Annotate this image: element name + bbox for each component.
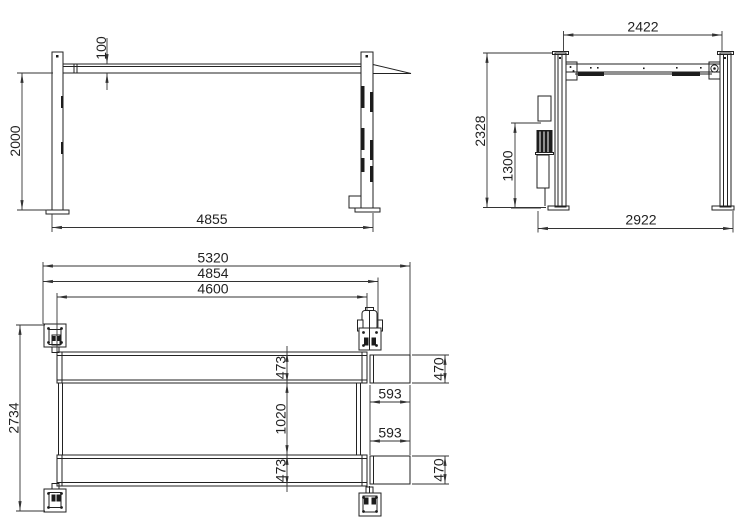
plan-post-front-right: [358, 308, 383, 351]
dim-end-overall-width-label: 2922: [625, 212, 656, 228]
dim-end-crossbeam-span-label: 2422: [627, 19, 658, 35]
dim-side-post-span-label: 4855: [196, 211, 227, 227]
dim-side-lift-height: 2000: [7, 73, 53, 210]
side-right-post: [349, 52, 380, 212]
side-platform: [63, 64, 361, 73]
dim-side-platform-thickness: 100: [93, 36, 109, 90]
dim-plan-runway-length-label: 4600: [197, 281, 228, 297]
plan-runway-bottom: [57, 455, 367, 486]
dim-side-lift-height-label: 2000: [7, 125, 23, 156]
end-view: 2422 2328 1300 2922: [472, 19, 734, 233]
plan-crossbeam-right: [357, 383, 361, 455]
dim-plan-post-span-label: 4854: [197, 265, 228, 281]
plan-ramp-top: [370, 355, 410, 383]
plan-post-rear-right: [359, 486, 381, 516]
plan-view: 5320 4854 4600 2734 473 1020: [6, 250, 450, 517]
dim-end-power-unit-height-label: 1300: [500, 150, 516, 181]
dim-plan-ramp-width-top: 470: [412, 355, 449, 383]
dim-plan-ramp-offset-top-label: 593: [378, 386, 402, 402]
plan-post-rear-left: [44, 484, 66, 513]
dim-plan-runway-width-bottom-label: 473: [273, 459, 289, 483]
plan-crossbeam-left: [59, 383, 63, 455]
end-power-unit: [536, 96, 554, 206]
dim-plan-ramp-offset-bottom-label: 593: [378, 425, 402, 441]
dim-end-crossbeam-span: 2422: [564, 19, 723, 53]
side-left-post: [46, 52, 69, 214]
dim-plan-ramp-width-bottom-label: 470: [431, 458, 447, 482]
dim-plan-ramp-offset-bottom: 593: [370, 425, 410, 442]
dim-side-platform-thickness-label: 100: [93, 36, 109, 60]
dim-end-power-unit-height: 1300: [500, 123, 542, 208]
dim-plan-overall-width-label: 2734: [6, 402, 22, 433]
side-drive-on-ramp: [373, 65, 411, 74]
technical-drawing-canvas: 2000 100 4855: [0, 0, 751, 532]
end-crossbeam: [566, 62, 720, 80]
dim-plan-runway-length: 4600: [57, 281, 367, 353]
dim-plan-overall-length-label: 5320: [197, 250, 228, 266]
dim-plan-post-span: 4854: [43, 265, 378, 328]
dim-plan-runway-gap: 1020: [273, 383, 289, 455]
end-right-post: [712, 52, 734, 211]
dim-end-overall-height-label: 2328: [472, 115, 488, 146]
side-view: 2000 100 4855: [7, 36, 411, 232]
dim-plan-overall-width: 2734: [6, 325, 46, 511]
drawing-sheet: 2000 100 4855: [0, 0, 751, 532]
dim-plan-ramp-offset-top: 593: [370, 385, 410, 455]
dim-end-overall-width: 2922: [538, 211, 733, 233]
dim-plan-runway-gap-label: 1020: [273, 403, 289, 434]
plan-post-front-left: [44, 324, 66, 353]
dim-plan-ramp-width-top-label: 470: [431, 357, 447, 381]
dim-side-post-span: 4855: [52, 211, 373, 232]
dim-plan-runway-width-top-label: 473: [273, 356, 289, 380]
plan-runway-top: [57, 352, 367, 383]
plan-ramp-bottom: [370, 456, 410, 484]
dim-plan-ramp-width-bottom: 470: [412, 456, 449, 484]
